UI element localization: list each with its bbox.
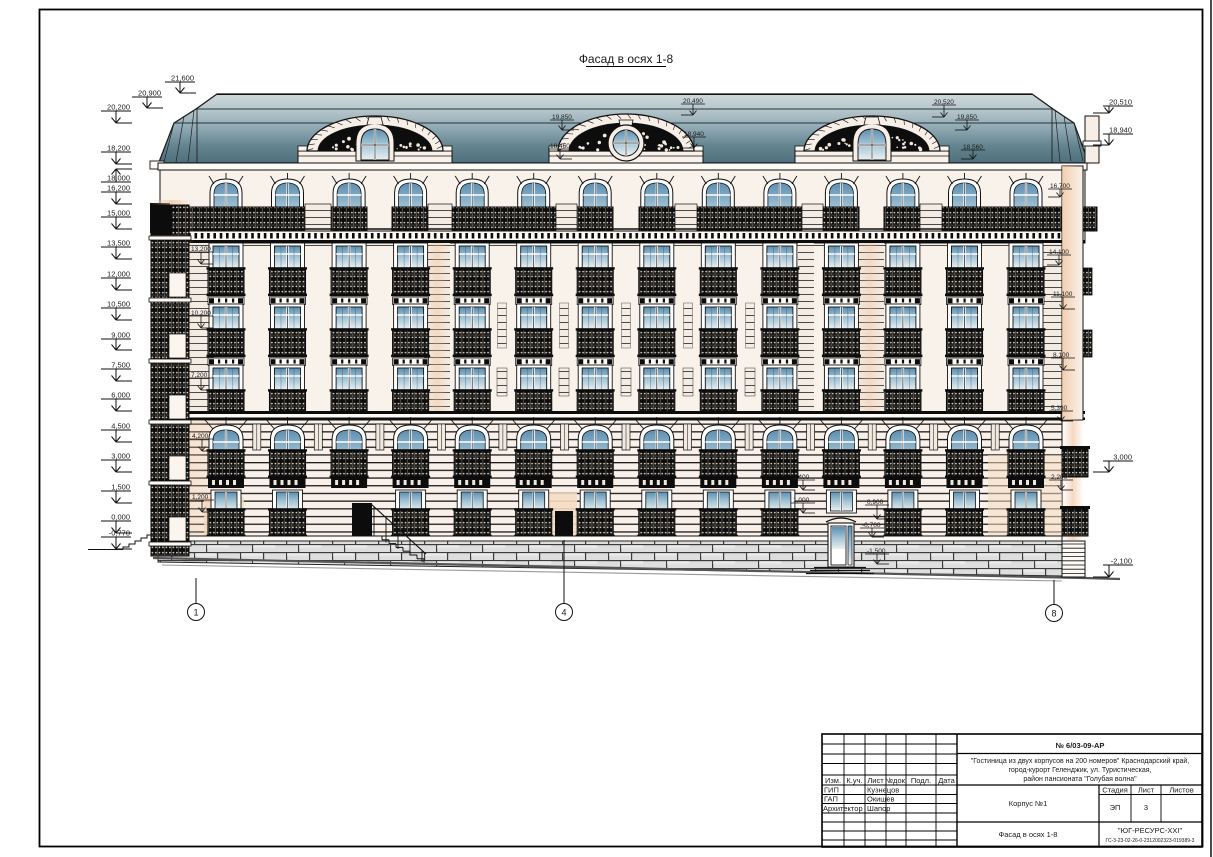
svg-text:ГИП: ГИП xyxy=(824,786,839,795)
svg-text:"Гостиница из двух корпусов на: "Гостиница из двух корпусов на 200 номер… xyxy=(971,757,1190,765)
svg-text:3,000: 3,000 xyxy=(111,452,130,461)
svg-text:Листов: Листов xyxy=(1169,786,1193,795)
svg-text:Окишев: Окишев xyxy=(867,795,894,804)
svg-text:21,600: 21,600 xyxy=(171,74,194,83)
svg-text:Лист: Лист xyxy=(867,776,884,785)
svg-text:ЭП: ЭП xyxy=(1110,803,1121,812)
svg-text:Фасад в осях 1-8: Фасад в осях 1-8 xyxy=(999,830,1058,839)
svg-text:город-курорт Геленджик, ул. Ту: город-курорт Геленджик, ул. Туристическа… xyxy=(1009,767,1152,774)
svg-text:ГС-3-23-02-26-0-2312002323-019: ГС-3-23-02-26-0-2312002323-019389-3 xyxy=(1106,838,1195,844)
svg-text:Архитектор: Архитектор xyxy=(823,804,863,813)
svg-text:18,940: 18,940 xyxy=(1109,126,1132,135)
svg-text:13,500: 13,500 xyxy=(107,239,130,248)
svg-text:№док.: №док. xyxy=(885,776,907,785)
svg-text:16,200: 16,200 xyxy=(107,184,130,193)
svg-text:4,500: 4,500 xyxy=(111,422,130,431)
svg-text:Корпус №1: Корпус №1 xyxy=(1009,799,1048,808)
svg-text:"ЮГ-РЕСУРС-XXI": "ЮГ-РЕСУРС-XXI" xyxy=(1118,826,1183,835)
svg-text:Изм.: Изм. xyxy=(825,776,841,785)
svg-text:ГАП: ГАП xyxy=(824,795,838,804)
svg-text:3: 3 xyxy=(1144,803,1148,812)
svg-text:9,000: 9,000 xyxy=(111,331,130,340)
svg-text:К.уч.: К.уч. xyxy=(846,776,862,785)
svg-text:-0,770: -0,770 xyxy=(109,529,130,538)
svg-text:район пансионата "Голубая волн: район пансионата "Голубая волна" xyxy=(1023,775,1137,783)
svg-text:Фасад в осях 1-8: Фасад в осях 1-8 xyxy=(579,52,674,66)
svg-text:0,000: 0,000 xyxy=(111,513,130,522)
svg-text:18,000: 18,000 xyxy=(107,174,130,183)
svg-text:12,000: 12,000 xyxy=(107,270,130,279)
svg-text:7,500: 7,500 xyxy=(111,361,130,370)
svg-text:Лист: Лист xyxy=(1138,786,1155,795)
svg-text:Подл.: Подл. xyxy=(911,776,931,785)
svg-text:20,900: 20,900 xyxy=(138,89,161,98)
svg-text:4: 4 xyxy=(561,608,566,618)
svg-text:Дата: Дата xyxy=(938,776,955,785)
svg-text:15,000: 15,000 xyxy=(107,209,130,218)
svg-text:-2,100: -2,100 xyxy=(1111,557,1132,566)
svg-text:20,200: 20,200 xyxy=(107,103,130,112)
svg-text:6,000: 6,000 xyxy=(111,391,130,400)
svg-text:1,500: 1,500 xyxy=(111,483,130,492)
svg-text:3,000: 3,000 xyxy=(1113,453,1132,462)
svg-text:№ 6/03-09-АР: № 6/03-09-АР xyxy=(1056,741,1105,750)
svg-text:8: 8 xyxy=(1051,609,1056,619)
svg-text:1: 1 xyxy=(193,608,198,618)
svg-text:18,200: 18,200 xyxy=(107,144,130,153)
svg-text:20,510: 20,510 xyxy=(1109,98,1132,107)
svg-text:Кузнецов: Кузнецов xyxy=(867,786,899,795)
svg-text:Шапор: Шапор xyxy=(867,804,890,813)
svg-text:10,500: 10,500 xyxy=(107,300,130,309)
svg-text:Стадия: Стадия xyxy=(1102,786,1128,795)
